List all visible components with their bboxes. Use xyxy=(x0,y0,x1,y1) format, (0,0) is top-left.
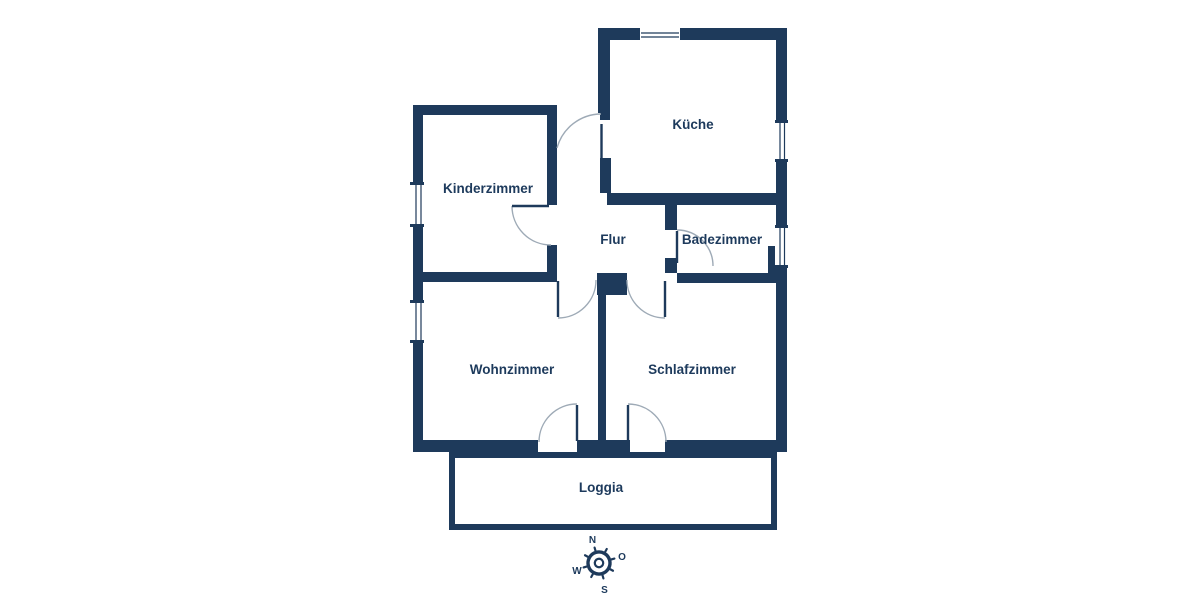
wall-badezimmer-left-stub xyxy=(665,258,677,273)
compass-north-label: N xyxy=(589,535,596,546)
room-label-kueche: Küche xyxy=(672,117,714,132)
wall-central-block xyxy=(597,273,627,295)
wall-left-upper xyxy=(413,105,423,182)
wall-badezimmer-left-upper xyxy=(665,205,677,230)
window-wohnzimmer-icon xyxy=(410,300,425,343)
wall-right-lower xyxy=(776,268,787,452)
wall-loggia-left xyxy=(449,452,455,530)
wall-kueche-top-right xyxy=(680,28,787,40)
room-label-schlafzimmer: Schlafzimmer xyxy=(648,362,737,377)
window-kueche-right-icon xyxy=(775,120,788,162)
wall-kinderzimmer-top xyxy=(413,105,557,115)
room-label-loggia: Loggia xyxy=(579,480,624,495)
door-loggia-schlafzimmer-icon xyxy=(628,404,666,442)
door-kueche-icon xyxy=(557,114,602,158)
wall-right-mid xyxy=(776,162,787,225)
compass-south-label: S xyxy=(601,585,608,596)
door-loggia-wohnzimmer-icon xyxy=(539,404,577,442)
compass-rose-icon: N O W S xyxy=(572,535,626,596)
wall-corridor xyxy=(607,193,777,205)
door-kinderzimmer-icon xyxy=(512,206,551,245)
door-schlafzimmer-icon xyxy=(627,280,665,318)
room-label-flur: Flur xyxy=(600,232,626,247)
wall-kinderzimmer-right-upper xyxy=(547,105,557,205)
floorplan-drawing: Küche Kinderzimmer Flur Badezimmer Wohnz… xyxy=(0,0,1200,600)
room-label-wohnzimmer: Wohnzimmer xyxy=(470,362,555,377)
wall-room-divider xyxy=(598,295,606,452)
wall-left-mid xyxy=(413,227,423,300)
wall-bottom-right xyxy=(665,440,787,452)
wall-loggia-right xyxy=(771,452,777,530)
compass-east-label: O xyxy=(618,552,626,563)
wall-right-upper xyxy=(776,28,787,120)
door-wohnzimmer-icon xyxy=(558,280,596,318)
wall-kueche-left-jamb xyxy=(600,113,610,120)
window-kinderzimmer-icon xyxy=(410,182,425,227)
wall-loggia-bottom xyxy=(449,524,777,530)
wall-below-kueche-door xyxy=(600,158,611,193)
room-label-badezimmer: Badezimmer xyxy=(682,232,763,247)
wall-schlafzimmer-top xyxy=(677,273,777,283)
room-label-kinderzimmer: Kinderzimmer xyxy=(443,181,534,196)
walls xyxy=(413,28,787,530)
compass-west-label: W xyxy=(572,566,582,577)
floorplan-page: Küche Kinderzimmer Flur Badezimmer Wohnz… xyxy=(0,0,1200,600)
wall-bottom-mid xyxy=(577,440,630,452)
wall-loggia-top xyxy=(449,452,777,458)
wall-bottom-left xyxy=(413,440,538,452)
window-kueche-top-icon xyxy=(637,28,683,40)
wall-left-lower xyxy=(413,343,423,452)
window-badezimmer-icon xyxy=(775,225,788,268)
wall-kinderzimmer-bottom xyxy=(413,272,557,282)
wall-kueche-left xyxy=(598,28,610,113)
